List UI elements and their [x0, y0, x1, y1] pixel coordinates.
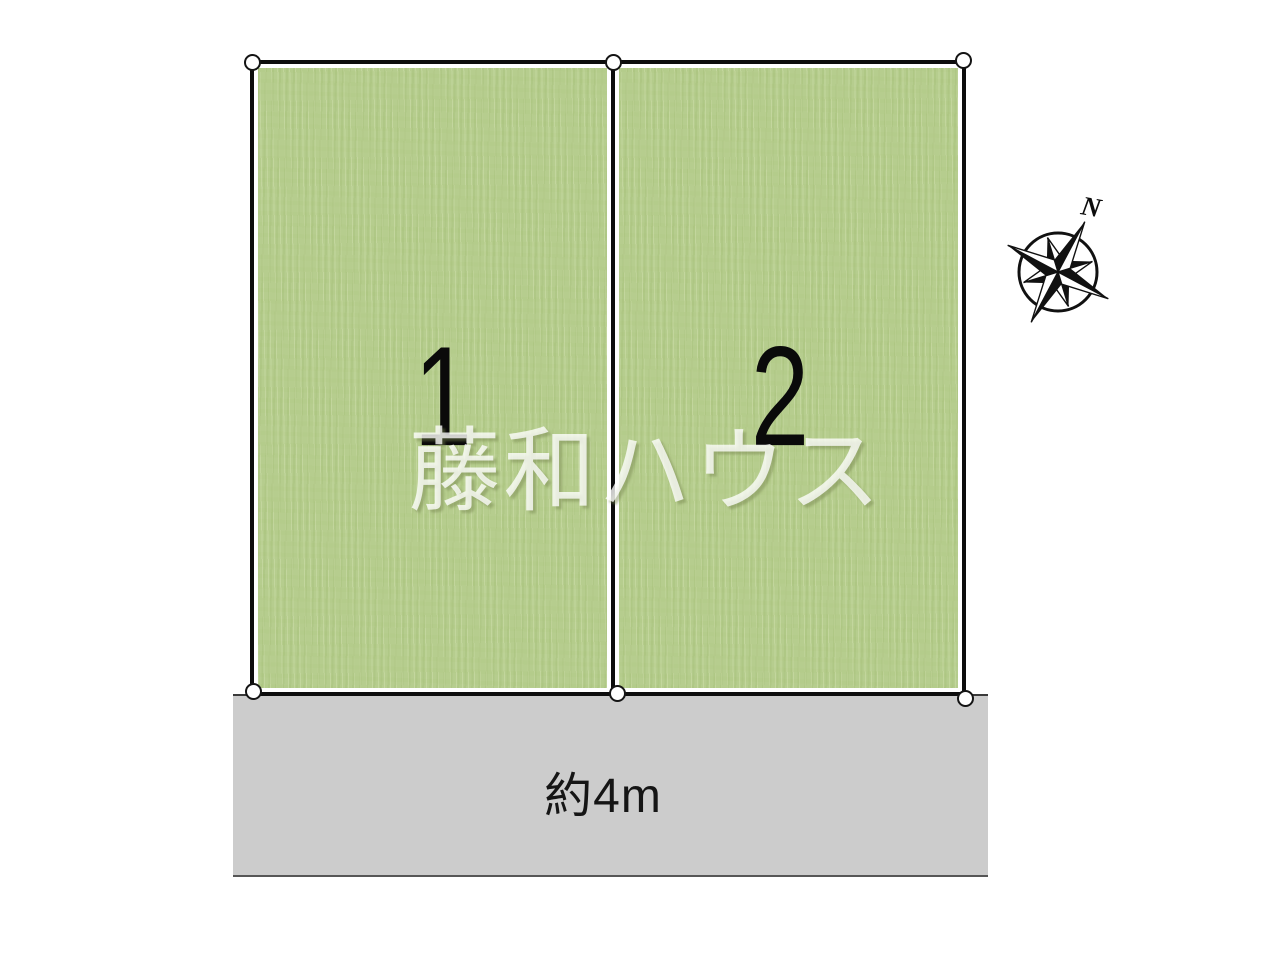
compass-north-label: N [1078, 190, 1105, 223]
lot-2-number: 2 [751, 326, 809, 468]
lot-1: 1 [254, 64, 611, 692]
lot-1-fill: 1 [258, 68, 607, 688]
lot-area: 1 2 [250, 60, 966, 696]
lot-2: 2 [615, 64, 962, 692]
survey-marker-top-left [244, 54, 261, 71]
survey-marker-top-middle [605, 54, 622, 71]
road-width-label: 約4m [544, 756, 662, 826]
survey-marker-bottom-middle [609, 685, 626, 702]
site-plan: 約4m 1 2 [0, 0, 1280, 960]
road-area: 約4m [233, 694, 988, 877]
survey-marker-bottom-left [245, 683, 262, 700]
compass-rose-icon: N [996, 184, 1120, 334]
lot-2-fill: 2 [619, 68, 958, 688]
lot-1-number: 1 [414, 326, 472, 468]
survey-marker-bottom-right [957, 690, 974, 707]
survey-marker-top-right [955, 52, 972, 69]
